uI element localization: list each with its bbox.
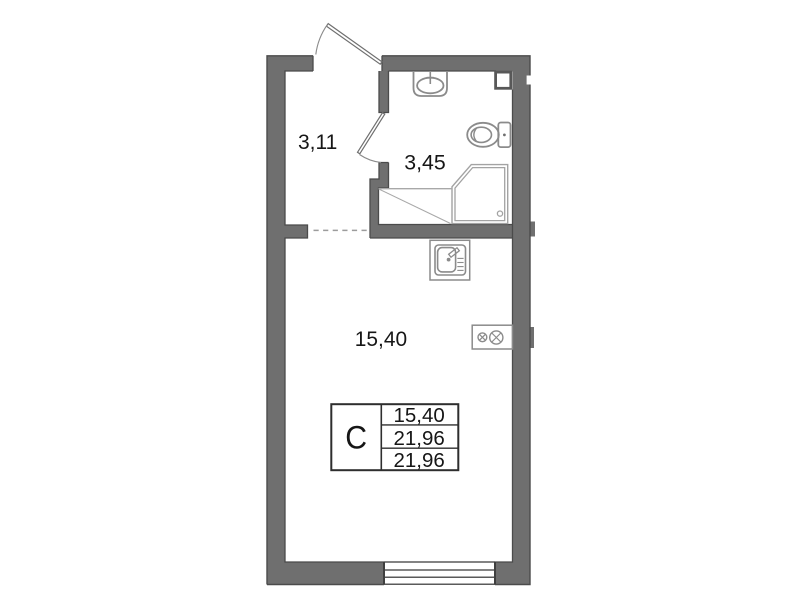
svg-text:3,11: 3,11 <box>298 131 337 154</box>
svg-text:21,96: 21,96 <box>393 449 444 472</box>
svg-text:3,45: 3,45 <box>404 151 445 175</box>
svg-text:C: C <box>345 419 367 455</box>
svg-text:15,40: 15,40 <box>355 328 407 351</box>
svg-text:21,96: 21,96 <box>393 427 444 450</box>
svg-text:15,40: 15,40 <box>393 404 444 427</box>
